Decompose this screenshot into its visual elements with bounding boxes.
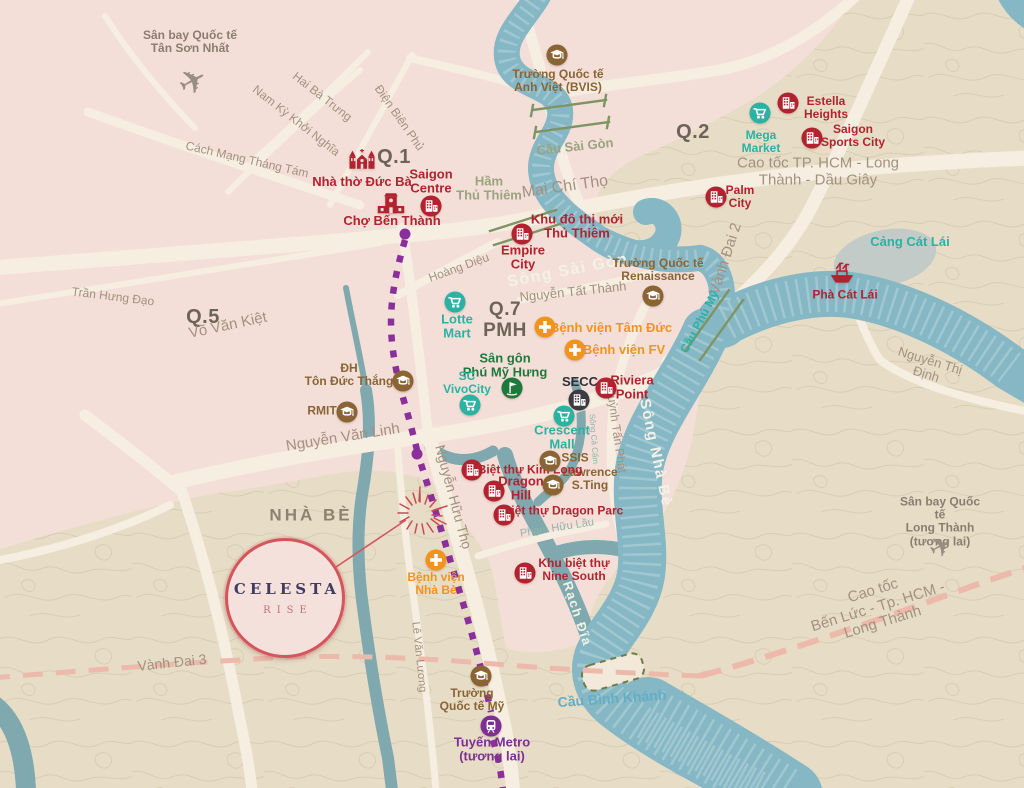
rmit-icon[interactable] bbox=[336, 401, 359, 424]
estella-heights-icon[interactable] bbox=[777, 92, 800, 115]
tam-duc-hospital-icon[interactable] bbox=[534, 316, 557, 339]
lotte-mart-icon[interactable] bbox=[444, 291, 467, 314]
saigon-sports-city-icon[interactable] bbox=[801, 127, 824, 150]
saigon-centre-icon[interactable] bbox=[420, 195, 443, 218]
project-badge[interactable]: CELESTA RISE bbox=[225, 538, 345, 658]
palm-city-icon[interactable] bbox=[705, 186, 728, 209]
dragon-parc-icon[interactable] bbox=[493, 504, 516, 527]
dragon-hill-icon[interactable] bbox=[483, 480, 506, 503]
lawrence-sting-school-icon[interactable] bbox=[542, 474, 565, 497]
metro-terminus-ben-thanh bbox=[400, 229, 410, 239]
nha-be-hospital-icon[interactable] bbox=[425, 549, 448, 572]
map-canvas: Q.1Q.2Q.5Q.7 PMHNHÀ BÈHai Bà TrưngNam Kỳ… bbox=[0, 0, 1024, 788]
project-title: CELESTA bbox=[230, 580, 340, 598]
project-subtitle: RISE bbox=[257, 605, 313, 616]
bvis-school-icon[interactable] bbox=[546, 44, 569, 67]
cat-lai-ferry-icon[interactable] bbox=[828, 258, 856, 284]
metro-node bbox=[412, 449, 422, 459]
ben-thanh-market-icon[interactable] bbox=[376, 191, 406, 215]
renaissance-school-icon[interactable] bbox=[642, 285, 665, 308]
ton-duc-thang-icon[interactable] bbox=[392, 370, 415, 393]
notre-dame-cathedral-icon[interactable] bbox=[347, 146, 377, 174]
american-school-icon[interactable] bbox=[470, 665, 493, 688]
ssis-school-icon[interactable] bbox=[539, 450, 562, 473]
riviera-point-icon[interactable] bbox=[595, 377, 618, 400]
empire-city-icon[interactable] bbox=[511, 223, 534, 246]
nine-south-icon[interactable] bbox=[514, 562, 537, 585]
mega-market-icon[interactable] bbox=[749, 102, 772, 125]
pmh-golf-icon[interactable] bbox=[501, 377, 524, 400]
metro-line-icon[interactable] bbox=[480, 715, 503, 738]
sc-vivocity-icon[interactable] bbox=[459, 394, 482, 417]
kim-long-villas-icon[interactable] bbox=[461, 459, 484, 482]
crescent-mall-icon[interactable] bbox=[553, 405, 576, 428]
fv-hospital-icon[interactable] bbox=[564, 339, 587, 362]
